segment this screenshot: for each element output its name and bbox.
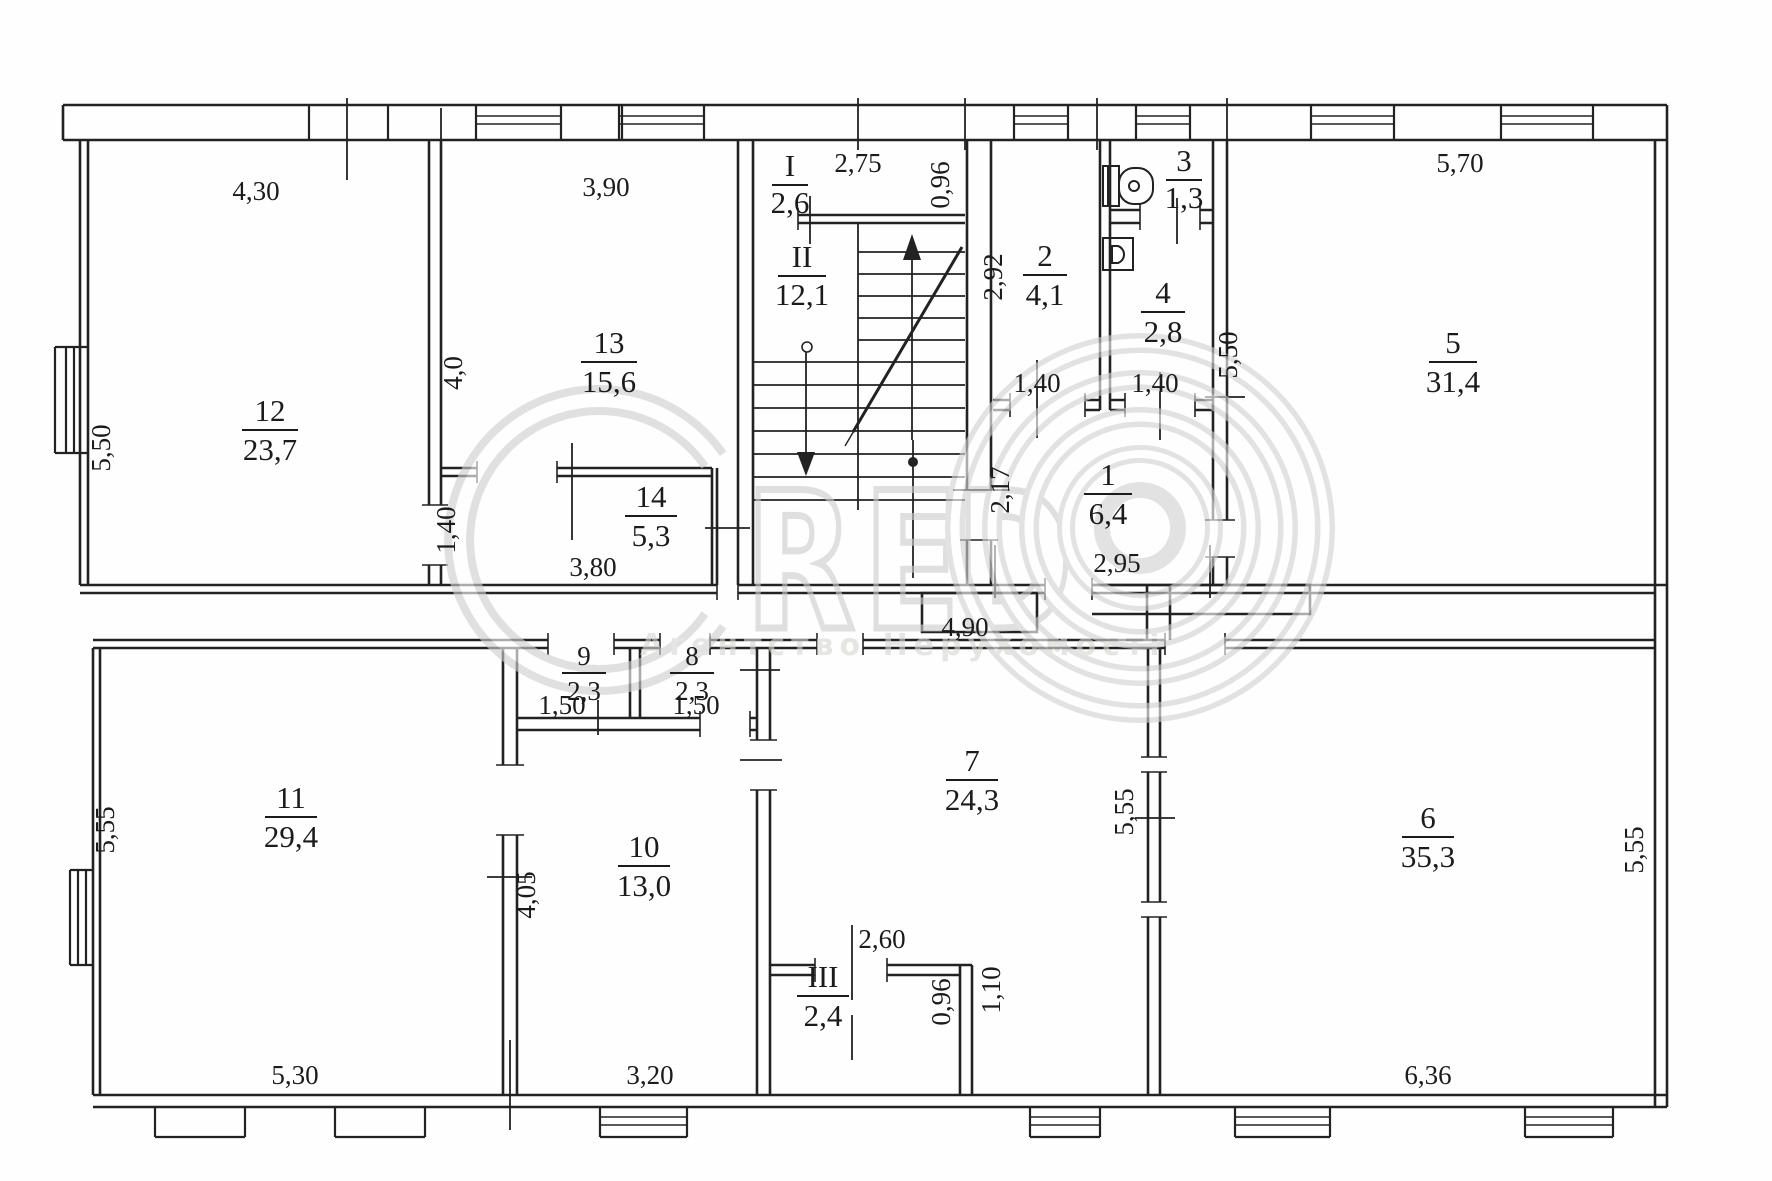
room-label-fraction-lines [242, 180, 1477, 996]
room-6-area: 35,3 [1401, 839, 1455, 874]
dim-room12-width: 4,30 [232, 176, 279, 206]
room-10-area: 13,0 [617, 868, 671, 903]
room-7-number: 7 [964, 743, 980, 778]
dim-room5-height: 5,50 [1213, 331, 1243, 378]
dim-room5-width: 5,70 [1436, 148, 1483, 178]
room-II-number: II [792, 239, 813, 274]
floor-plan-drawing: R E D Агентство Нерухомості 12 23,7 13 1… [0, 0, 1772, 1181]
stair-node-circle [802, 342, 812, 352]
dim-room6-height: 5,55 [1619, 826, 1649, 873]
dim-room2-door: 1,40 [1013, 368, 1060, 398]
top-wall-glazing [476, 116, 1593, 124]
room-5-area: 31,4 [1426, 364, 1481, 399]
dim-room1-width: 2,95 [1093, 548, 1140, 578]
room-2-area: 4,1 [1026, 277, 1065, 312]
stair-up-arrow-head [903, 234, 921, 260]
dim-room11-height: 5,55 [90, 806, 120, 853]
dim-room14-width: 3,80 [569, 552, 616, 582]
dim-room4-door: 1,40 [1131, 368, 1178, 398]
room-2-number: 2 [1037, 238, 1053, 273]
room-7-area: 24,3 [945, 782, 999, 817]
dim-room13-width: 3,90 [582, 172, 629, 202]
dim-room6-width: 6,36 [1404, 1060, 1451, 1090]
room-12-area: 23,7 [243, 432, 297, 467]
room-11-number: 11 [276, 780, 306, 815]
dim-entry-width: 4,90 [941, 612, 988, 642]
room-5-number: 5 [1445, 325, 1461, 360]
dim-room8-width: 1,50 [672, 690, 719, 720]
watermark-subtitle: Агентство Нерухомості [640, 628, 1166, 663]
room-10-number: 10 [629, 829, 660, 864]
bottom-wall-glazing [600, 1117, 1613, 1125]
room-9-number: 9 [577, 641, 591, 671]
room-1-number: 1 [1100, 457, 1116, 492]
dim-roomIII-offset: 1,10 [976, 966, 1006, 1013]
dim-room10-height: 4,05 [511, 871, 541, 918]
dim-room1-height: 2,17 [985, 466, 1015, 513]
floor-plan-scan: R E D Агентство Нерухомості 12 23,7 13 1… [0, 0, 1772, 1181]
top-wall-window-jambs [309, 105, 1593, 140]
room-1-area: 6,4 [1089, 496, 1128, 531]
dim-room7-height: 5,55 [1109, 788, 1139, 835]
dim-stairs-width: 2,75 [834, 148, 881, 178]
room-13-area: 15,6 [582, 364, 636, 399]
room-4-number: 4 [1155, 275, 1171, 310]
room-11-area: 29,4 [264, 819, 319, 854]
dim-room2-height: 2,92 [978, 253, 1008, 300]
room-3-area: 1,3 [1165, 180, 1204, 215]
room-3-number: 3 [1176, 143, 1192, 178]
room-6-number: 6 [1420, 800, 1436, 835]
room-II-area: 12,1 [775, 277, 829, 312]
sink-icon [1103, 238, 1133, 270]
dim-room12-height: 5,50 [86, 424, 116, 471]
dim-vestibule-depth: 0,96 [925, 161, 955, 208]
stair-break-line-2 [845, 261, 954, 446]
dim-roomIII-width: 2,60 [858, 924, 905, 954]
room-12-number: 12 [255, 393, 286, 428]
room-8-number: 8 [685, 641, 699, 671]
dim-roomIII-height: 0,96 [926, 978, 956, 1025]
dim-room10-width: 3,20 [626, 1060, 673, 1090]
room-14-area: 5,3 [632, 518, 671, 553]
room-14-number: 14 [636, 479, 668, 514]
room-III-area: 2,4 [804, 998, 843, 1033]
dim-room11-width: 5,30 [271, 1060, 318, 1090]
dim-room13-height: 4,0 [438, 356, 468, 390]
bottom-wall-window-jambs [155, 1107, 1613, 1137]
room-I-area: 2,6 [771, 185, 810, 220]
room-4-area: 2,8 [1144, 314, 1183, 349]
room-I-number: I [785, 148, 795, 183]
dim-room14-height: 1,40 [431, 506, 461, 553]
room-III-number: III [808, 959, 839, 994]
room-13-number: 13 [594, 325, 625, 360]
dim-room9-width: 1,50 [538, 690, 585, 720]
